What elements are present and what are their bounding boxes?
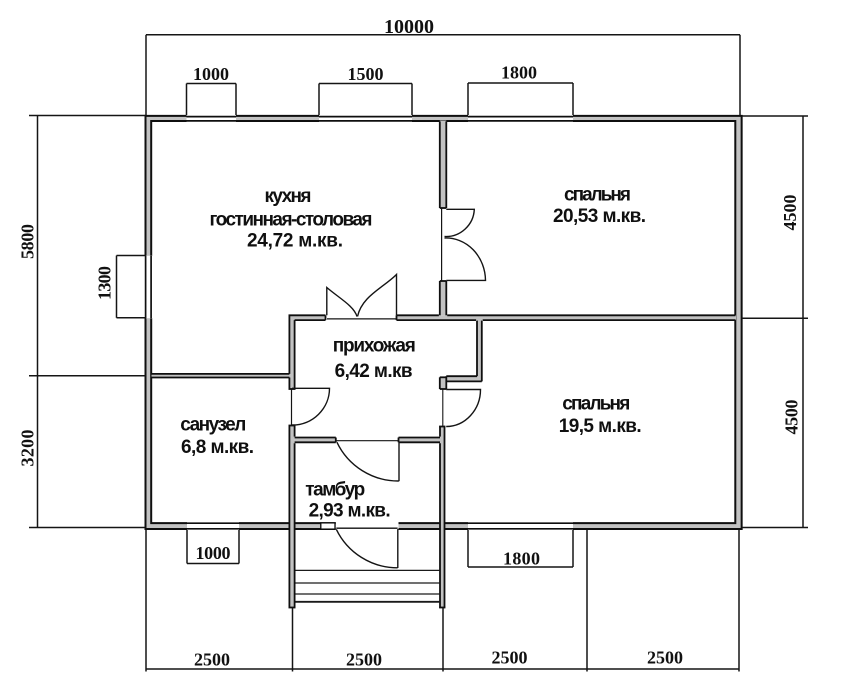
- svg-text:24,72 м.кв.: 24,72 м.кв.: [247, 231, 343, 252]
- svg-text:2500: 2500: [647, 648, 683, 668]
- svg-text:2,93 м.кв.: 2,93 м.кв.: [309, 501, 391, 522]
- svg-text:6,42 м.кв: 6,42 м.кв: [335, 361, 413, 382]
- svg-text:2500: 2500: [194, 650, 230, 670]
- svg-text:прихожая: прихожая: [333, 336, 416, 357]
- svg-text:20,53 м.кв.: 20,53 м.кв.: [553, 206, 646, 227]
- svg-text:спальня: спальня: [564, 185, 631, 206]
- svg-text:тамбур: тамбур: [305, 480, 365, 501]
- svg-text:1800: 1800: [503, 549, 540, 569]
- svg-text:6,8 м.кв.: 6,8 м.кв.: [181, 437, 254, 458]
- svg-text:1000: 1000: [193, 64, 229, 84]
- svg-text:2500: 2500: [492, 648, 528, 668]
- svg-text:4500: 4500: [782, 400, 802, 435]
- svg-text:1500: 1500: [348, 64, 384, 84]
- svg-text:5800: 5800: [18, 224, 38, 259]
- svg-text:санузел: санузел: [180, 415, 246, 436]
- svg-text:1300: 1300: [95, 266, 115, 300]
- svg-text:2500: 2500: [346, 650, 382, 670]
- svg-text:1800: 1800: [501, 63, 537, 83]
- svg-text:19,5 м.кв.: 19,5 м.кв.: [559, 416, 642, 437]
- svg-text:4500: 4500: [780, 195, 800, 231]
- svg-text:гостинная-столовая: гостинная-столовая: [210, 210, 373, 231]
- svg-text:3200: 3200: [18, 430, 38, 467]
- svg-text:1000: 1000: [196, 543, 231, 563]
- svg-text:спальня: спальня: [562, 394, 630, 415]
- svg-text:кухня: кухня: [265, 186, 312, 207]
- svg-text:10000: 10000: [384, 16, 434, 38]
